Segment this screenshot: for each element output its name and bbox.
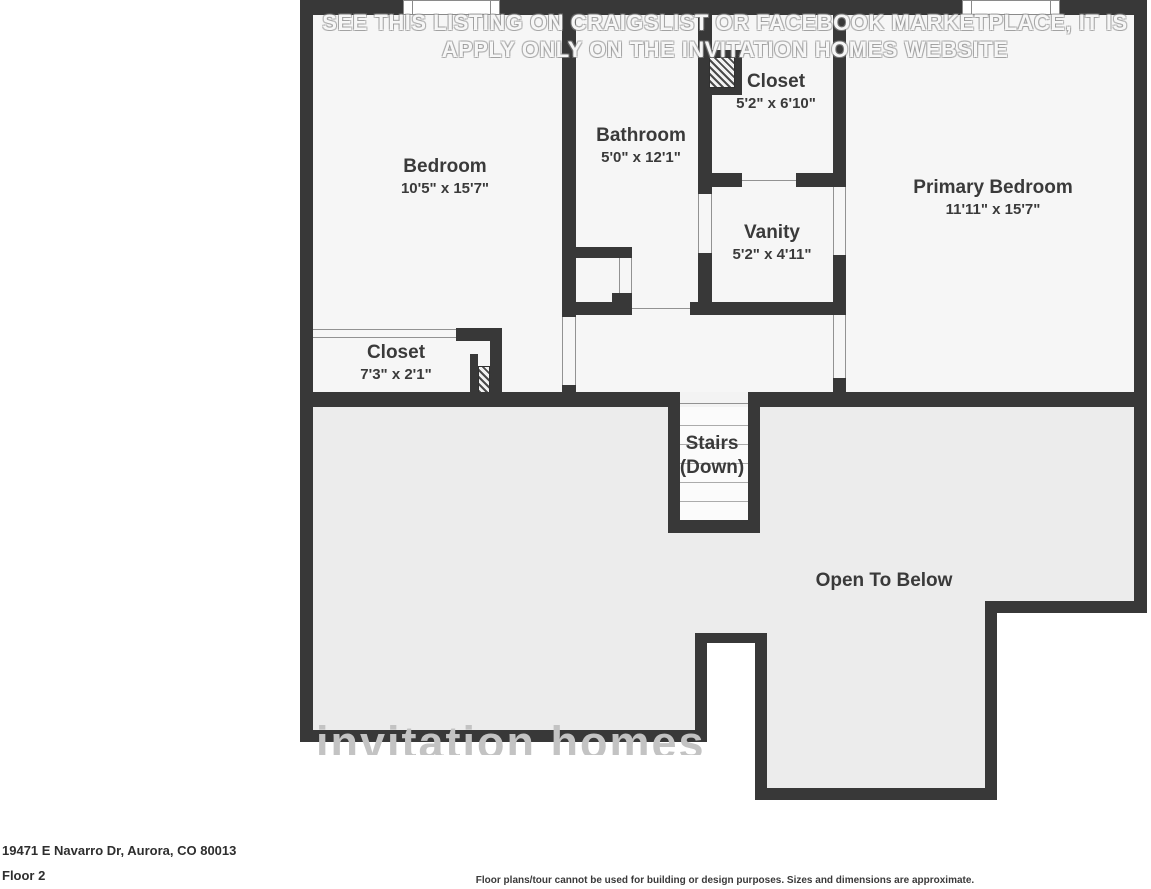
listing-watermark-line2: APPLY ONLY ON THE INVITATION HOMES WEBSI… bbox=[300, 36, 1150, 63]
door-opening-bathroom-vanity bbox=[698, 194, 712, 253]
room-label-closet-upper: Closet 5'2" x 6'10" bbox=[736, 70, 816, 114]
shower-door-opening bbox=[619, 258, 632, 295]
room-dimensions: 7'3" x 2'1" bbox=[360, 365, 431, 385]
wall-closet-right bbox=[490, 328, 502, 393]
wall-right bbox=[1134, 0, 1147, 613]
wall-shower-stub bbox=[612, 293, 632, 305]
wall-stairs-left bbox=[668, 392, 680, 520]
wall-main-horizontal bbox=[300, 392, 668, 407]
wall-vanity-bottom bbox=[712, 302, 833, 315]
wall-left bbox=[300, 0, 313, 742]
stairs-label-line1: Stairs bbox=[680, 432, 744, 456]
address-text: 19471 E Navarro Dr, Aurora, CO 80013 bbox=[2, 843, 236, 858]
brand-watermark-clip: invitation homes bbox=[316, 722, 746, 755]
room-label-closet-lower: Closet 7'3" x 2'1" bbox=[360, 341, 431, 385]
stairs-label: Stairs (Down) bbox=[680, 432, 744, 480]
room-label-bathroom: Bathroom 5'0" x 12'1" bbox=[596, 124, 686, 168]
stairs-threshold-line bbox=[680, 403, 748, 404]
room-name: Primary Bedroom bbox=[913, 176, 1072, 200]
wall-vanity-primary bbox=[833, 255, 846, 315]
room-name: Bedroom bbox=[401, 155, 489, 179]
wall-middle-right bbox=[985, 605, 997, 800]
wall-middle-bottom bbox=[755, 788, 997, 800]
open-to-below-label: Open To Below bbox=[816, 569, 953, 593]
listing-watermark-line1: SEE THIS LISTING ON CRAIGSLIST OR FACEBO… bbox=[300, 9, 1150, 36]
room-dimensions: 5'0" x 12'1" bbox=[596, 148, 686, 168]
door-opening-hall-primary bbox=[833, 315, 846, 378]
room-name: Closet bbox=[360, 341, 431, 365]
door-opening-bedroom bbox=[562, 317, 576, 385]
wall-right-section-bottom bbox=[985, 601, 1147, 613]
wall-stub bbox=[470, 354, 478, 393]
open-below-fill-right bbox=[985, 392, 1134, 601]
room-name: Bathroom bbox=[596, 124, 686, 148]
wall-stairs-right bbox=[748, 392, 760, 520]
door-threshold-line bbox=[632, 308, 690, 309]
disclaimer-text: Floor plans/tour cannot be used for buil… bbox=[300, 875, 1150, 886]
room-label-vanity: Vanity 5'2" x 4'11" bbox=[733, 221, 812, 265]
room-name: Closet bbox=[736, 70, 816, 94]
door-threshold-line bbox=[742, 180, 796, 181]
wall-main-horizontal bbox=[760, 392, 1147, 407]
open-below-fill-left bbox=[313, 392, 695, 730]
door-opening-vanity-primary bbox=[833, 187, 846, 255]
room-label-primary-bedroom: Primary Bedroom 11'11" x 15'7" bbox=[913, 176, 1072, 220]
room-dimensions: 5'2" x 4'11" bbox=[733, 245, 812, 265]
stairs-label-line2: (Down) bbox=[680, 456, 744, 480]
closet-front-line bbox=[313, 329, 456, 338]
wall-shower-top bbox=[574, 247, 632, 258]
stairs-entry-opening bbox=[680, 392, 748, 407]
floor-plan-page: Bedroom 10'5" x 15'7" Bathroom 5'0" x 12… bbox=[0, 0, 1151, 889]
floor-number-text: Floor 2 bbox=[2, 868, 45, 883]
room-dimensions: 10'5" x 15'7" bbox=[401, 179, 489, 199]
room-dimensions: 5'2" x 6'10" bbox=[736, 94, 816, 114]
wall-notch-right bbox=[755, 633, 767, 800]
room-name: Vanity bbox=[733, 221, 812, 245]
wall-stairs-bottom bbox=[668, 520, 760, 533]
listing-watermark: SEE THIS LISTING ON CRAIGSLIST OR FACEBO… bbox=[300, 9, 1150, 63]
brand-watermark: invitation homes bbox=[316, 722, 746, 755]
open-to-below-text: Open To Below bbox=[816, 569, 953, 593]
room-label-bedroom: Bedroom 10'5" x 15'7" bbox=[401, 155, 489, 199]
wall-bathroom-bottom bbox=[690, 302, 712, 315]
room-dimensions: 11'11" x 15'7" bbox=[913, 200, 1072, 220]
wall-closet-bottom bbox=[710, 173, 742, 187]
